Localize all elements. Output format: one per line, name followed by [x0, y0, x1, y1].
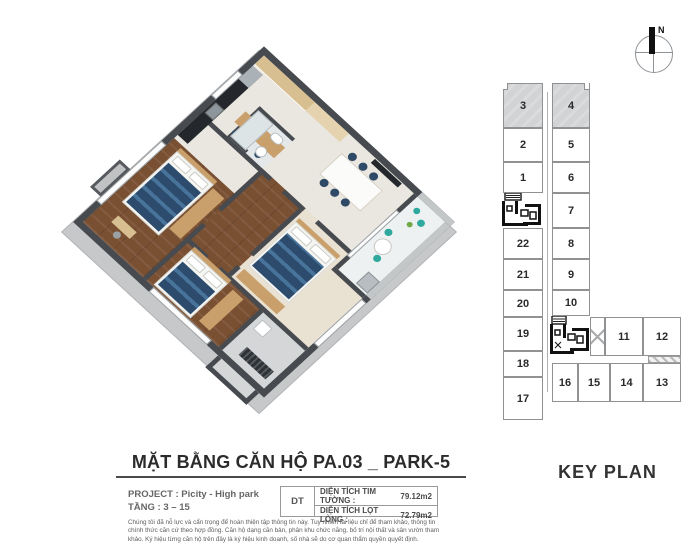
compass-north-label: N: [658, 25, 665, 35]
unit-13: 13: [643, 363, 681, 402]
unit-17: 17: [503, 377, 543, 420]
unit-12: 12: [643, 317, 681, 356]
unit-18: 18: [503, 351, 543, 377]
unit-2: 2: [503, 128, 543, 162]
key-plan-title: KEY PLAN: [520, 462, 695, 483]
project-info: PROJECT : Picity - High park TẦNG : 3 – …: [128, 489, 259, 515]
keyplan-hatch-strip: [648, 356, 681, 363]
area-row-gross: DIỆN TÍCH TIM TƯỜNG : 79.12m2: [315, 487, 437, 505]
unit-7: 7: [552, 193, 590, 228]
page-title: MẶT BẰNG CĂN HỘ PA.03 _ PARK-5: [116, 452, 466, 478]
unit-19: 19: [503, 317, 543, 351]
unit-15: 15: [578, 363, 610, 402]
area-table: DT DIỆN TÍCH TIM TƯỜNG : 79.12m2 DIỆN TÍ…: [280, 486, 438, 517]
unit-6: 6: [552, 162, 590, 193]
apartment-3d-plan: [73, 46, 455, 397]
elevator-shaft: [590, 317, 605, 356]
unit-9: 9: [552, 259, 590, 290]
pantry-cabinet: [306, 102, 349, 142]
unit-3: 3: [503, 83, 543, 128]
compass-north-needle: [649, 27, 655, 54]
unit-20: 20: [503, 290, 543, 317]
area-label: DIỆN TÍCH TIM TƯỜNG :: [320, 487, 400, 505]
disclaimer-text: Chúng tôi đã nỗ lực và cẩn trọng để hoàn…: [128, 519, 450, 544]
unit-1: 1: [503, 162, 543, 193]
area-code-cell: DT: [281, 487, 315, 516]
unit-22: 22: [503, 228, 543, 259]
unit-21: 21: [503, 259, 543, 290]
unit-14: 14: [610, 363, 643, 402]
area-value: 79.12m2: [400, 492, 432, 501]
project-label: PROJECT : Picity - High park: [128, 489, 259, 502]
unit-10: 10: [552, 290, 590, 316]
floor-label: TẦNG : 3 – 15: [128, 502, 259, 515]
core-detail-plan-right: [550, 316, 592, 357]
unit-4-notch: [584, 83, 589, 90]
unit-5: 5: [552, 128, 590, 162]
unit-11: 11: [605, 317, 643, 356]
floor-plan-sheet: { "compass": { "north_label": "N" }, "ti…: [0, 0, 700, 560]
unit-16: 16: [552, 363, 578, 402]
unit-3-notch: [503, 83, 508, 90]
core-detail-plan-left: [501, 193, 545, 228]
unit-8: 8: [552, 228, 590, 259]
kitchen-cabinets: [254, 55, 315, 111]
keyplan-corridor-line: [547, 92, 548, 392]
